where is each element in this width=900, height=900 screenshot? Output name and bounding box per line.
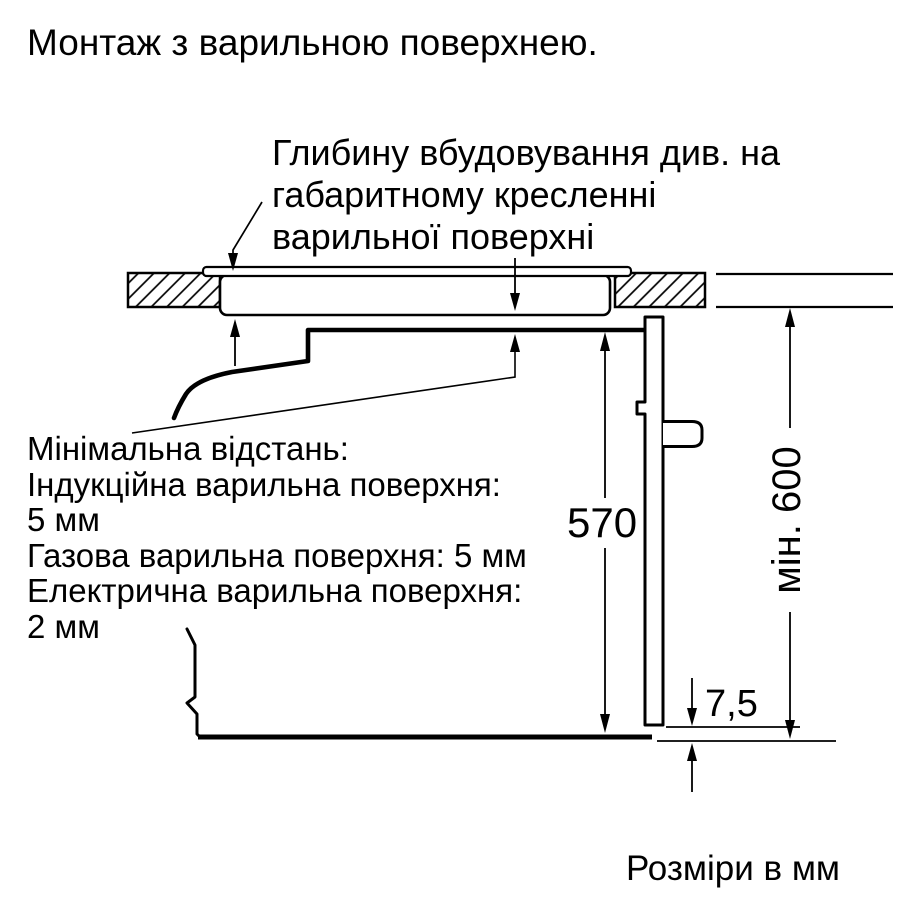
dim-7-5-lines — [687, 678, 697, 792]
dim-570-label: 570 — [564, 499, 640, 547]
worktop-right-section — [615, 273, 705, 307]
min-distance-line-3: 5 мм — [27, 502, 527, 538]
oven-bottom-and-break-line — [187, 629, 652, 737]
hob-body — [220, 275, 610, 315]
bottom-reference-lines — [657, 727, 836, 741]
min-distance-note: Мінімальна відстань: Індукційна варильна… — [27, 431, 527, 644]
worktop-left-section — [128, 273, 220, 307]
min-distance-line-1: Мінімальна відстань: — [27, 431, 527, 467]
installation-diagram: Монтаж з варильною поверхнею. Глибину вб… — [0, 0, 900, 900]
units-note: Розміри в мм — [626, 849, 840, 889]
page-title: Монтаж з варильною поверхнею. — [27, 22, 598, 65]
callout-line-2: габаритному кресленні — [272, 174, 780, 216]
callout-line-3: варильної поверхні — [272, 216, 780, 258]
hob-depth-callout: Глибину вбудовування див. на габаритному… — [272, 132, 780, 258]
hob-glass-plate — [203, 267, 631, 276]
callout-leader-arrow — [228, 202, 262, 271]
callout-line-1: Глибину вбудовування див. на — [272, 132, 780, 174]
min-distance-line-5: Електрична варильна поверхня: — [27, 573, 527, 609]
worktop-continuation — [716, 274, 893, 307]
min-distance-line-6: 2 мм — [27, 609, 527, 645]
hob-gap-arrow-left — [230, 319, 240, 366]
dim-600-label: мін. 600 — [764, 440, 810, 599]
oven-door-panel — [637, 317, 663, 725]
dim-7-5-label: 7,5 — [705, 683, 758, 727]
oven-door-handle-icon — [663, 422, 702, 447]
min-distance-line-2: Індукційна варильна поверхня: — [27, 467, 527, 503]
oven-top-and-break-line — [174, 330, 646, 418]
min-distance-leader-arrow — [132, 334, 520, 433]
min-distance-line-4: Газова варильна поверхня: 5 мм — [27, 538, 527, 574]
